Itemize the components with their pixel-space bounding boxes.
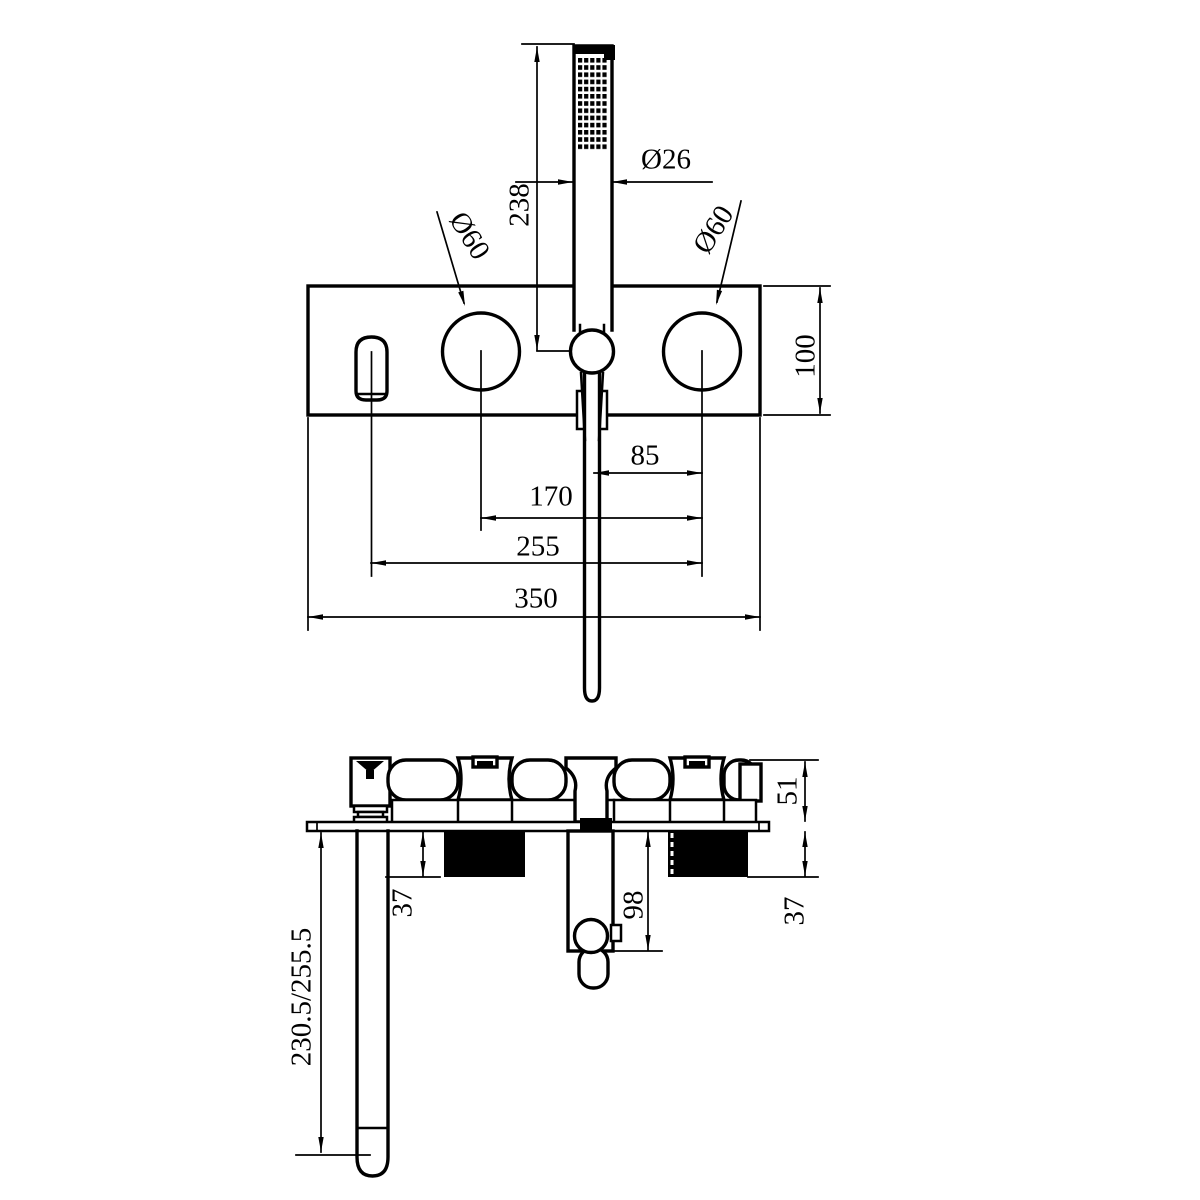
body-end-cap xyxy=(740,764,761,801)
drawing-linework xyxy=(0,0,1200,1200)
dim-label-hose-to-right-knob: 85 xyxy=(631,442,660,471)
wall-plate-side xyxy=(307,822,769,831)
dim-label-hose-outlet-depth: 98 xyxy=(620,891,649,920)
dim-label-spout-length: 230.5/255.5 xyxy=(288,928,317,1067)
dim-label-right-cartridge-depth: 37 xyxy=(781,897,810,926)
technical-drawing: 238 Ø26 Ø60 Ø60 100 85 170 255 350 51 37… xyxy=(0,0,1200,1200)
valve-barrel xyxy=(614,760,670,800)
left-cartridge xyxy=(444,831,525,877)
shower-holder-side xyxy=(566,758,616,822)
dim-label-spout-to-right-knob: 255 xyxy=(516,533,560,562)
right-cartridge xyxy=(668,831,748,877)
dim-label-left-to-right-knob: 170 xyxy=(529,483,573,512)
dim-label-plate-width: 350 xyxy=(514,585,558,614)
spout-tube-side xyxy=(357,831,388,1176)
dim-label-plate-height: 100 xyxy=(792,334,821,378)
spray-face xyxy=(578,58,609,152)
valve-barrel xyxy=(388,760,458,800)
hose-ball-joint xyxy=(571,330,614,373)
hose-outlet-ball xyxy=(575,920,608,953)
dim-label-handshower-diameter: Ø26 xyxy=(641,146,691,175)
valve-barrel xyxy=(512,760,566,800)
dim-label-handshower-height: 238 xyxy=(506,183,535,227)
dim-label-left-cartridge-depth: 37 xyxy=(389,889,418,918)
side-view xyxy=(307,757,769,1176)
dim-label-body-depth: 51 xyxy=(774,777,803,806)
